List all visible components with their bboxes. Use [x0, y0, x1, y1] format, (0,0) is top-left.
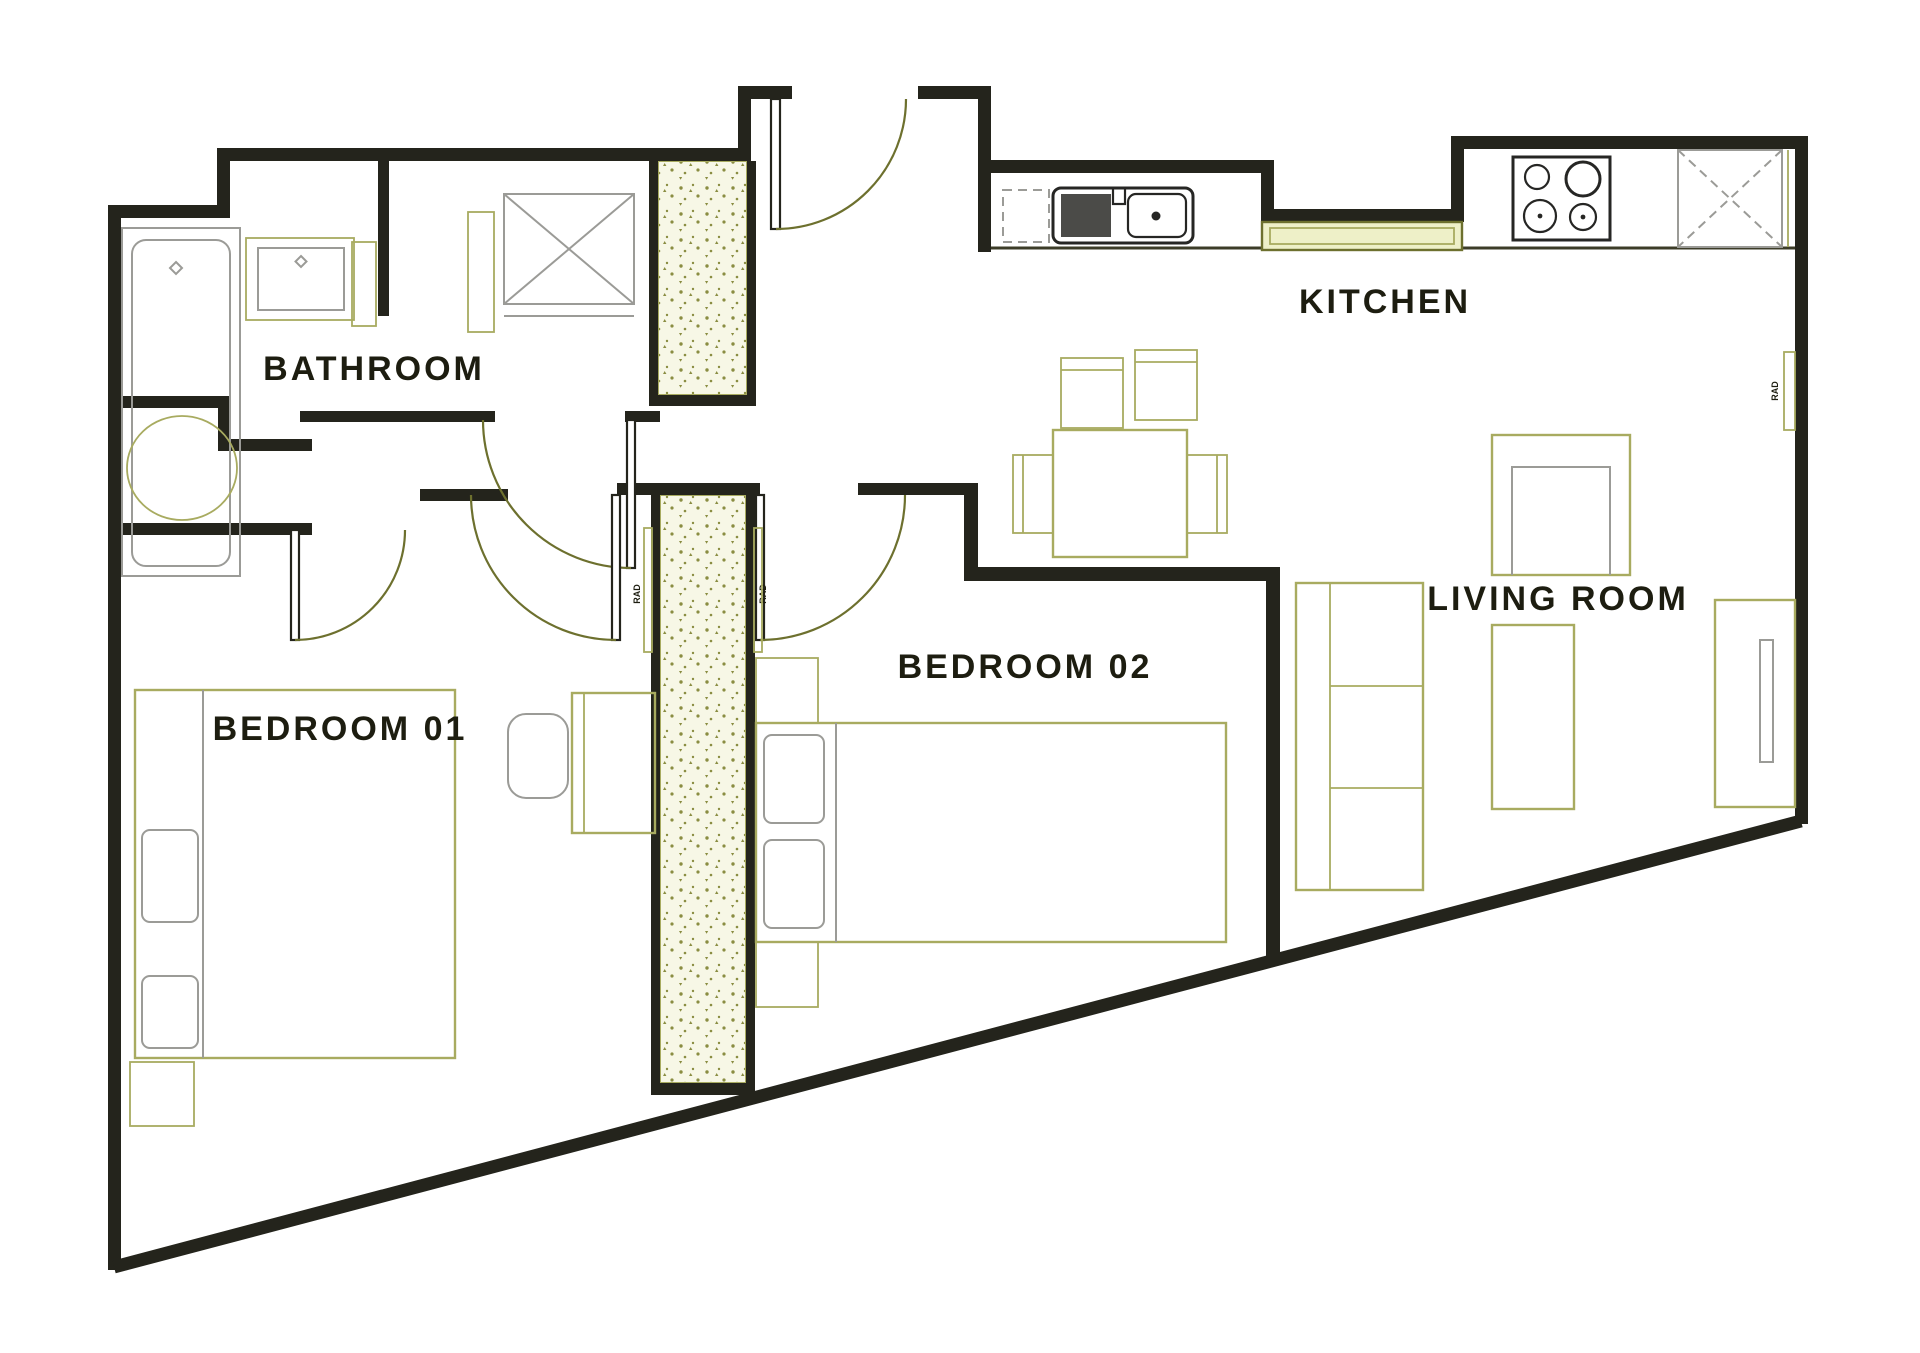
- wc-door-leaf: [291, 530, 299, 640]
- armchair-seat: [1512, 467, 1610, 575]
- dining-chair-right: [1187, 455, 1227, 533]
- tv-screen: [1760, 640, 1773, 762]
- bathroom-cabinet: [352, 242, 376, 326]
- radiator-tag-bed02: RAD: [758, 584, 768, 604]
- coffee-table: [1492, 625, 1574, 809]
- service-shafts: [658, 161, 747, 1083]
- entrance-door-swing-arc: [776, 99, 906, 229]
- floor-plan: BATHROOM KITCHEN LIVING ROOM BEDROOM 01 …: [0, 0, 1920, 1353]
- tv-unit: [1715, 600, 1795, 807]
- radiator-tag-living: RAD: [1770, 381, 1780, 401]
- burner-dot-right: [1581, 215, 1586, 220]
- washbasin-counter: [246, 238, 354, 320]
- dining-chair-top-b: [1135, 350, 1197, 420]
- burner-dot-left: [1538, 214, 1543, 219]
- entrance-door: [771, 99, 906, 229]
- kitchen-window-sill: [1262, 222, 1462, 250]
- radiator-tag-bed01: RAD: [632, 584, 642, 604]
- bedroom-01-furniture: [130, 690, 655, 1126]
- bedroom-02-door-swing-arc: [760, 495, 905, 640]
- bathroom-label: BATHROOM: [263, 350, 485, 388]
- radiator-living: [1784, 352, 1795, 430]
- bedroom-02-label: BEDROOM 02: [898, 648, 1153, 686]
- shaft-hatch-central-wall: [660, 495, 746, 1083]
- dining-table: [1053, 430, 1187, 557]
- bed-02-pillow-a: [764, 735, 824, 823]
- bedroom-01-door-swing-arc: [471, 495, 616, 640]
- bedroom-02-furniture: [756, 658, 1226, 1007]
- dining-chair-top-a: [1061, 358, 1123, 428]
- sink-bowl-left: [1061, 194, 1111, 237]
- living-room-label: LIVING ROOM: [1427, 580, 1689, 618]
- washbasin-tap-icon: [296, 256, 307, 267]
- utility-shelf: [468, 212, 494, 332]
- bedside-table: [130, 1062, 194, 1126]
- wc-door-swing-arc: [295, 530, 405, 640]
- burner-large: [1566, 162, 1600, 196]
- desk-chair: [508, 714, 568, 798]
- kitchen-label: KITCHEN: [1299, 283, 1471, 321]
- bedroom-01-label: BEDROOM 01: [213, 710, 468, 748]
- bathtub-tap-icon: [170, 262, 182, 274]
- living-room-furniture: [1013, 350, 1795, 890]
- bathroom-door-leaf: [627, 420, 635, 568]
- sink-drain: [1152, 212, 1161, 221]
- wc-door: [291, 530, 405, 640]
- toilet: [127, 416, 237, 520]
- sofa: [1296, 583, 1423, 890]
- dishwasher: [1003, 190, 1049, 242]
- dining-chair-left: [1013, 455, 1053, 533]
- bedroom-01-door: [471, 495, 620, 640]
- bed-01-pillow-a: [142, 830, 198, 922]
- outer-wall-diagonal: [114, 821, 1801, 1267]
- entrance-door-leaf: [771, 99, 780, 229]
- nightstand-top: [756, 658, 818, 723]
- utility-nook: [468, 194, 634, 332]
- nightstand-bottom: [756, 942, 818, 1007]
- radiator-bed01: [644, 528, 652, 652]
- shaft-hatch-entrance: [658, 161, 747, 395]
- bed-02: [756, 723, 1226, 942]
- bed-01-pillow-b: [142, 976, 198, 1048]
- bed-02-pillow-b: [764, 840, 824, 928]
- bedroom-02-door: [756, 495, 905, 640]
- bedroom-01-door-leaf: [612, 495, 620, 640]
